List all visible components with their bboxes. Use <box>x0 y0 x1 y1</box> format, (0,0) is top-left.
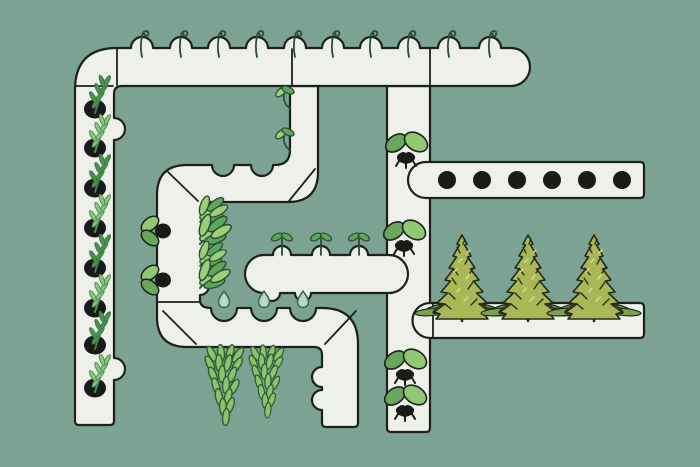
seedling-hole <box>155 224 171 239</box>
empty-plant-hole <box>473 171 491 189</box>
dotted-pipe-holes-instance <box>613 171 631 189</box>
dotted-pipe-holes-instance <box>508 171 526 189</box>
illustration-canvas <box>0 0 700 467</box>
empty-plant-hole <box>613 171 631 189</box>
empty-plant-hole <box>508 171 526 189</box>
empty-plant-hole <box>578 171 596 189</box>
dotted-pipe-holes-instance <box>578 171 596 189</box>
hydroponics-illustration <box>0 0 700 467</box>
dotted-pipe-holes-instance <box>543 171 561 189</box>
empty-plant-hole <box>543 171 561 189</box>
dotted-pipe-holes-instance <box>473 171 491 189</box>
empty-plant-hole <box>438 171 456 189</box>
pipe-middle <box>245 246 408 301</box>
dotted-pipe-holes-instance <box>438 171 456 189</box>
seedling-hole <box>155 273 171 288</box>
